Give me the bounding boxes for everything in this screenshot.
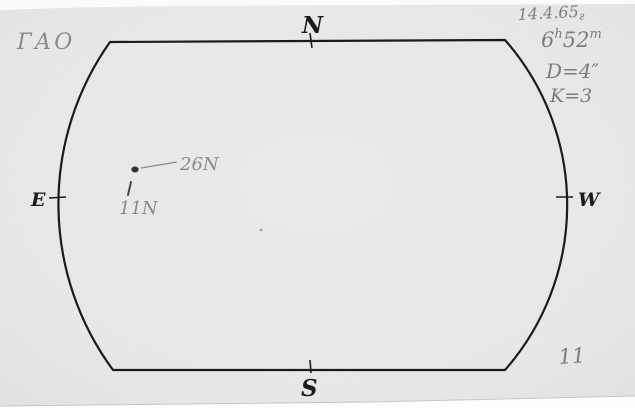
scanned-observation-sheet: N S E W ГАО 14.4.65г 6h52m D=4″ K=3 26N …: [0, 0, 635, 408]
secondary-spot-label: 11N: [119, 198, 159, 219]
south-label: S: [301, 375, 318, 402]
time-minutes: 52: [563, 28, 590, 52]
sunspot-mark: [132, 167, 139, 173]
east-label: E: [30, 189, 46, 211]
observation-drawing: N S E W ГАО 14.4.65г 6h52m D=4″ K=3 26N …: [0, 0, 635, 408]
quality-label: K=3: [549, 85, 592, 107]
time-hours: 6: [541, 28, 554, 52]
paper-grain-texture: [0, 0, 635, 408]
center-reference-dot: [260, 229, 263, 232]
observatory-label: ГАО: [16, 30, 75, 55]
spot-group-label: 26N: [179, 154, 220, 175]
east-tick: [49, 197, 66, 198]
north-label: N: [301, 12, 324, 39]
sheet-number: 11: [558, 343, 586, 369]
date-main: 14.4.65: [517, 2, 579, 24]
south-tick: [310, 360, 311, 373]
west-label: W: [578, 189, 601, 211]
time-minutes-unit: m: [589, 27, 601, 42]
aperture-label: D=4″: [545, 59, 600, 83]
time-hours-unit: h: [554, 27, 562, 42]
